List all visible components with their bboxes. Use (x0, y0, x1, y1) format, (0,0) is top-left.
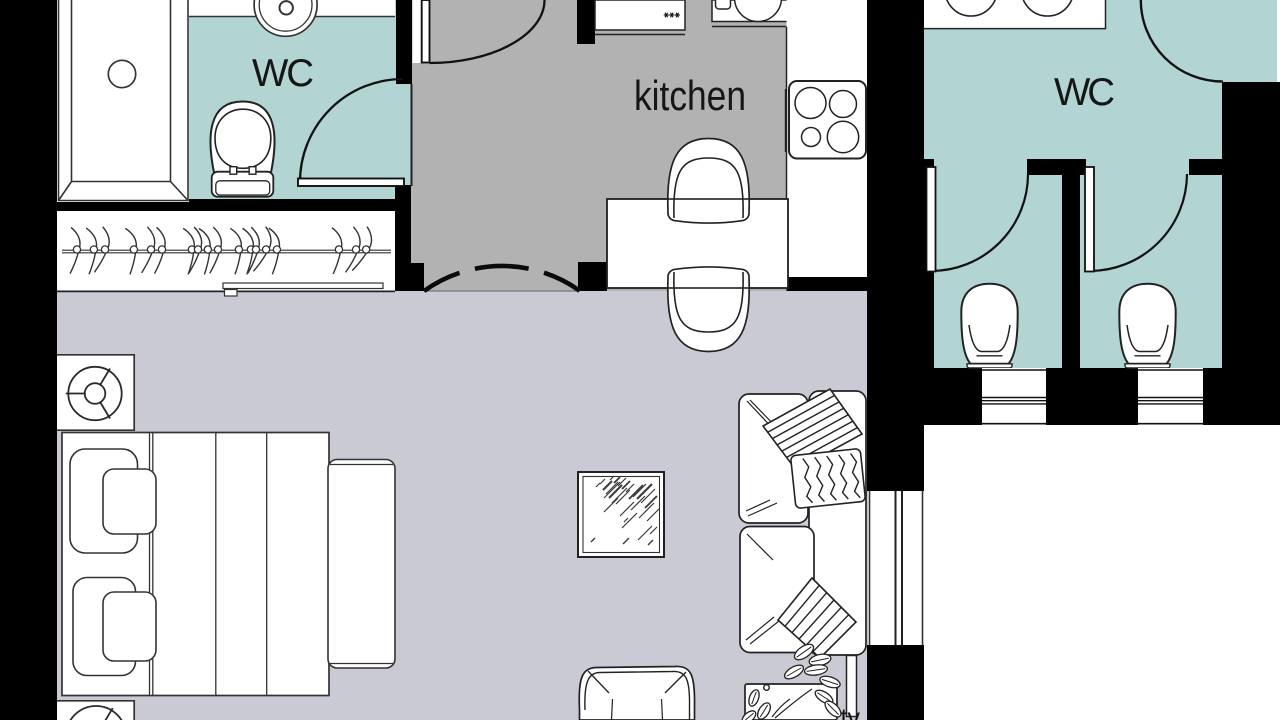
svg-text:kitchen: kitchen (634, 72, 746, 119)
svg-text:tv: tv (841, 704, 861, 720)
svg-text:WC: WC (1054, 71, 1115, 114)
svg-text:WC: WC (252, 52, 314, 95)
